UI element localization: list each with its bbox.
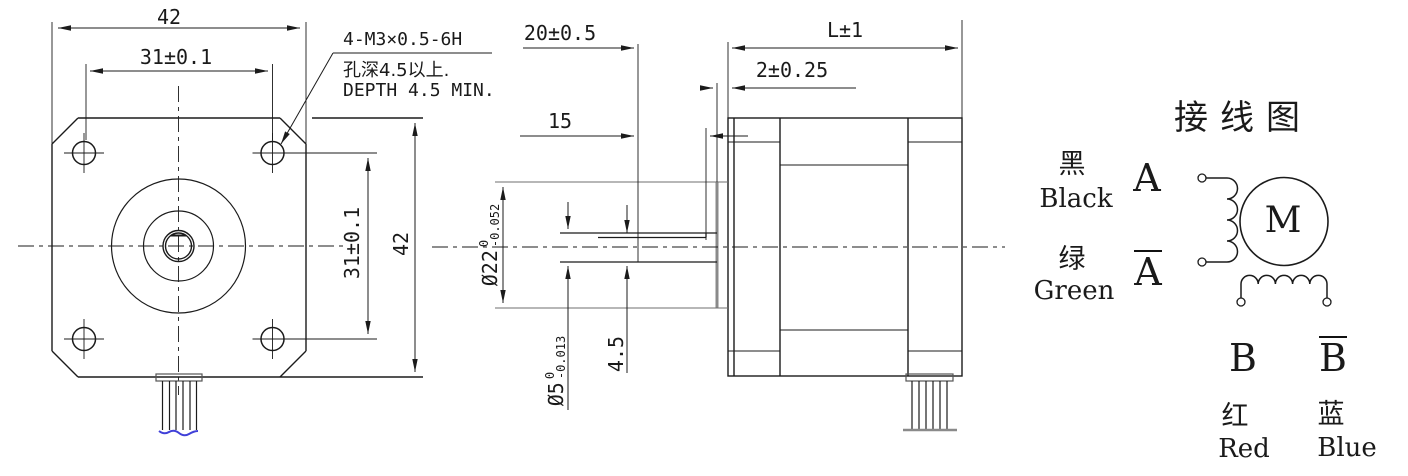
terminal-label-b-bar: B [1303, 336, 1363, 380]
terminal-label-b: B [1213, 336, 1273, 380]
sv-dim-shaft-diameter: Ø50-0.013 [544, 314, 568, 428]
tap-note-line1: 4-M3×0.5-6H [343, 29, 462, 50]
shaft-diameter-value: Ø5 [544, 382, 568, 406]
wiring-title: 接线图 [1138, 90, 1348, 139]
engineering-drawing-canvas: 42 31±0.1 31±0.1 42 4-M3×0.5-6H 孔深4.5以上.… [0, 0, 1408, 476]
fv-dim-hole-spacing-right: 31±0.1 [340, 183, 364, 303]
lead-b-color-en: Red [1184, 434, 1304, 464]
lead-b-bar-color-en: Blue [1287, 433, 1407, 463]
lead-b-color-cn: 红 [1195, 394, 1275, 433]
terminal-label-a: A [1117, 156, 1177, 200]
lead-a-bar-color-en: Green [1014, 276, 1134, 306]
lead-a-color-cn: 黑 [1032, 142, 1112, 181]
lead-b-bar-color-cn: 蓝 [1291, 392, 1371, 431]
sv-dim-boss-diameter: Ø220-0.052 [478, 178, 502, 312]
wire-tips-blue [159, 431, 198, 436]
a-bar-letter: A [1134, 250, 1161, 293]
sv-dim-shaft-extension: 20±0.5 [510, 21, 610, 45]
sv-dim-flat-height: 4.5 [604, 324, 628, 384]
fv-dim-hole-spacing-top: 31±0.1 [116, 45, 236, 69]
boss-diameter-lower-tol: -0.052 [490, 204, 501, 247]
sv-dim-body-length: L±1 [795, 18, 895, 42]
sv-dim-flat-length: 15 [535, 109, 585, 133]
sv-dim-boss-height: 2±0.25 [742, 58, 842, 82]
b-bar-letter: B [1319, 336, 1347, 379]
coil-phase-a [1206, 178, 1238, 262]
side-view-linework [432, 20, 1005, 430]
shaft-diameter-lower-tol: -0.013 [556, 336, 567, 379]
lead-a-bar-color-cn: 绿 [1032, 237, 1112, 276]
fv-dim-height-right: 42 [389, 184, 413, 304]
coil-phase-b [1241, 275, 1327, 298]
motor-symbol: M [1253, 200, 1313, 241]
tap-note-line3: DEPTH 4.5 MIN. [343, 80, 495, 101]
tap-note-line2: 孔深4.5以上. [343, 56, 449, 82]
fv-dim-width-top: 42 [139, 5, 199, 29]
boss-diameter-value: Ø22 [478, 250, 502, 286]
